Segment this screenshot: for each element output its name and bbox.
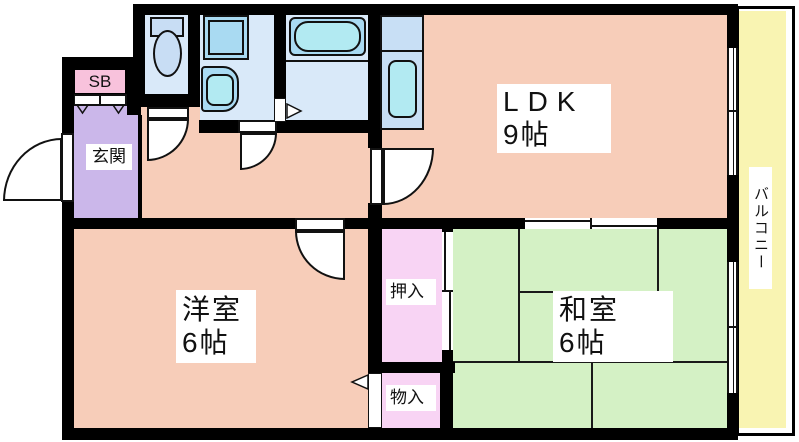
wall-right-1 — [727, 4, 738, 48]
bathroom-door-gap — [274, 98, 286, 122]
washroom-door-leaf — [238, 120, 277, 133]
shoe-box-text: SB — [89, 72, 112, 92]
sliding-panel-line — [525, 220, 591, 222]
wash-basin-bowl — [206, 74, 234, 106]
tatami-line — [591, 362, 593, 428]
wall-mid-c — [657, 218, 727, 229]
balcony-text: バルコニー — [750, 186, 771, 271]
wall-closet-divider — [368, 362, 455, 373]
wall-mid-b — [345, 218, 525, 229]
wall-entrance-corner — [127, 68, 141, 115]
shoe-box-chevron-icon — [76, 104, 89, 115]
closet-text: 押入 — [390, 282, 424, 302]
western-room-label: 洋室 6帖 — [176, 290, 256, 363]
wall-right-2 — [727, 175, 738, 262]
ldk-label: LDK 9帖 — [497, 84, 611, 153]
western-room-door-leaf — [295, 218, 345, 231]
balcony-label: バルコニー — [749, 167, 772, 289]
japanese-room-label: 和室 6帖 — [553, 291, 673, 362]
bathroom-divider-line — [286, 60, 368, 62]
wall-right-3 — [727, 393, 738, 440]
window-japanese-balcony — [727, 262, 738, 393]
window-ldk-balcony — [727, 48, 738, 175]
entrance-label: 玄関 — [86, 144, 132, 170]
western-room-size: 6帖 — [182, 327, 230, 359]
wall-closet-left — [368, 229, 382, 373]
closet-label: 押入 — [386, 279, 436, 305]
ldk-door-leaf — [370, 148, 383, 205]
sliding-door-closet — [442, 232, 453, 350]
front-door-leaf — [61, 133, 74, 202]
wall-toilet-washroom — [188, 4, 200, 107]
japanese-room-size: 6帖 — [559, 327, 607, 359]
sliding-panel-line — [591, 225, 657, 227]
entrance-text: 玄関 — [92, 147, 126, 167]
storage-door-gap — [368, 373, 382, 428]
kitchen-counter-divider — [380, 50, 424, 52]
storage-label: 物入 — [386, 385, 436, 411]
ldk-name: LDK — [503, 86, 584, 118]
japanese-room-name: 和室 — [559, 294, 619, 326]
wall-left-lower — [62, 200, 74, 440]
wall-storage-right — [440, 373, 453, 428]
ldk-size: 9帖 — [503, 119, 551, 151]
wall-bottom — [62, 428, 738, 440]
toilet-door-leaf — [147, 107, 189, 119]
shoe-box-chevron-icon — [112, 104, 125, 115]
storage-door-arrow-icon — [350, 374, 369, 390]
sliding-center-tick — [590, 218, 592, 229]
toilet-bowl — [153, 30, 182, 77]
wall-bathroom-bottom — [285, 120, 380, 133]
shoe-box-label: SB — [73, 70, 127, 94]
sliding-panel-line — [444, 232, 446, 291]
bathtub-inner — [294, 21, 361, 52]
kitchen-sink — [388, 60, 417, 118]
wall-mid-a — [62, 218, 295, 229]
front-door-swing — [3, 138, 62, 201]
shoe-box-counter-tick — [99, 96, 101, 104]
washing-machine — [208, 20, 244, 55]
sliding-door-ldk-japanese — [525, 218, 657, 229]
sliding-center-tick — [442, 290, 453, 292]
window-tick — [729, 110, 736, 112]
wall-left-upper — [62, 57, 74, 135]
tatami-line — [518, 229, 520, 362]
window-tick — [729, 326, 736, 328]
entrance-step-line — [138, 115, 142, 220]
western-room-name: 洋室 — [182, 294, 242, 326]
storage-text: 物入 — [390, 388, 424, 408]
sliding-panel-line — [449, 291, 451, 350]
bathroom-door-arrow-icon — [286, 103, 303, 119]
floor-plan: LDK 9帖 洋室 6帖 和室 6帖 玄関 SB 押入 物入 バルコニー — [0, 0, 799, 442]
wall-top — [133, 4, 738, 15]
